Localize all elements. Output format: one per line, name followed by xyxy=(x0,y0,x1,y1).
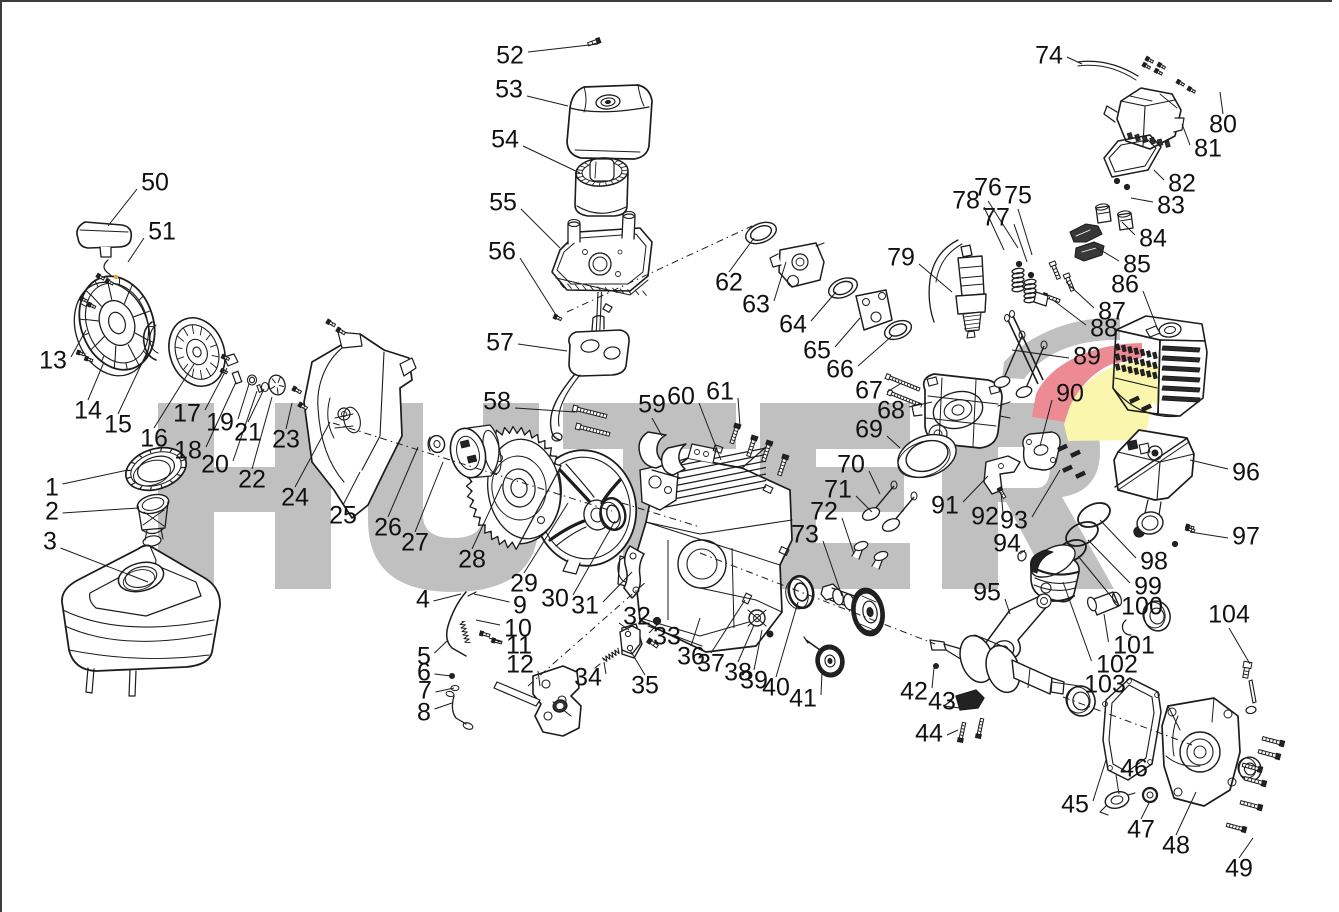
svg-text:63: 63 xyxy=(742,291,770,319)
svg-text:13: 13 xyxy=(39,347,67,375)
svg-text:46: 46 xyxy=(1120,755,1148,783)
svg-text:48: 48 xyxy=(1162,832,1190,860)
svg-text:37: 37 xyxy=(697,650,725,678)
svg-text:21: 21 xyxy=(234,419,262,447)
svg-text:41: 41 xyxy=(789,685,817,713)
svg-text:2: 2 xyxy=(45,498,59,526)
svg-text:91: 91 xyxy=(931,492,959,520)
svg-text:40: 40 xyxy=(762,674,790,702)
svg-text:77: 77 xyxy=(982,204,1010,232)
svg-text:81: 81 xyxy=(1194,135,1222,163)
svg-text:73: 73 xyxy=(791,521,819,549)
svg-text:70: 70 xyxy=(837,451,865,479)
svg-text:61: 61 xyxy=(706,378,734,406)
svg-text:12: 12 xyxy=(506,651,534,679)
svg-text:3: 3 xyxy=(43,528,57,556)
svg-text:44: 44 xyxy=(915,720,943,748)
svg-text:25: 25 xyxy=(329,502,357,530)
svg-text:92: 92 xyxy=(971,503,999,531)
svg-text:50: 50 xyxy=(141,169,169,197)
svg-text:86: 86 xyxy=(1111,271,1139,299)
svg-text:42: 42 xyxy=(900,678,928,706)
svg-text:62: 62 xyxy=(715,269,743,297)
svg-text:23: 23 xyxy=(272,426,300,454)
svg-text:66: 66 xyxy=(826,356,854,384)
svg-text:34: 34 xyxy=(574,664,602,692)
svg-text:15: 15 xyxy=(104,411,132,439)
svg-text:60: 60 xyxy=(667,383,695,411)
svg-text:53: 53 xyxy=(495,76,523,104)
svg-text:4: 4 xyxy=(416,586,430,614)
svg-text:45: 45 xyxy=(1061,791,1089,819)
svg-text:47: 47 xyxy=(1127,816,1155,844)
svg-text:98: 98 xyxy=(1140,548,1168,576)
svg-text:32: 32 xyxy=(623,603,651,631)
svg-text:103: 103 xyxy=(1084,671,1126,699)
svg-text:100: 100 xyxy=(1121,593,1163,621)
svg-text:90: 90 xyxy=(1056,380,1084,408)
svg-text:64: 64 xyxy=(779,311,807,339)
svg-text:88: 88 xyxy=(1090,315,1118,343)
svg-text:35: 35 xyxy=(631,672,659,700)
svg-text:27: 27 xyxy=(401,529,429,557)
svg-text:57: 57 xyxy=(486,329,514,357)
svg-text:22: 22 xyxy=(238,466,266,494)
svg-text:43: 43 xyxy=(928,688,956,716)
svg-text:17: 17 xyxy=(173,400,201,428)
svg-text:84: 84 xyxy=(1139,225,1167,253)
svg-text:55: 55 xyxy=(489,189,517,217)
svg-text:29: 29 xyxy=(510,570,538,598)
svg-text:94: 94 xyxy=(993,530,1021,558)
svg-text:83: 83 xyxy=(1157,192,1185,220)
svg-text:54: 54 xyxy=(491,126,519,154)
svg-text:69: 69 xyxy=(855,416,883,444)
svg-text:16: 16 xyxy=(140,425,168,453)
svg-text:28: 28 xyxy=(458,546,486,574)
svg-text:79: 79 xyxy=(887,244,915,272)
svg-text:52: 52 xyxy=(496,42,524,70)
svg-text:59: 59 xyxy=(638,391,666,419)
svg-text:74: 74 xyxy=(1035,42,1063,70)
svg-text:89: 89 xyxy=(1073,343,1101,371)
svg-text:49: 49 xyxy=(1225,855,1253,883)
svg-text:26: 26 xyxy=(374,514,402,542)
svg-text:30: 30 xyxy=(541,585,569,613)
svg-text:78: 78 xyxy=(952,187,980,215)
svg-text:20: 20 xyxy=(201,451,229,479)
svg-text:24: 24 xyxy=(281,484,309,512)
svg-text:96: 96 xyxy=(1232,459,1260,487)
svg-text:19: 19 xyxy=(206,409,234,437)
svg-text:51: 51 xyxy=(148,218,176,246)
svg-text:31: 31 xyxy=(571,592,599,620)
svg-text:58: 58 xyxy=(483,388,511,416)
svg-text:104: 104 xyxy=(1208,601,1250,629)
svg-text:95: 95 xyxy=(973,579,1001,607)
svg-text:56: 56 xyxy=(488,238,516,266)
svg-text:18: 18 xyxy=(174,437,202,465)
svg-text:8: 8 xyxy=(417,699,431,727)
svg-text:97: 97 xyxy=(1232,523,1260,551)
svg-text:14: 14 xyxy=(74,397,102,425)
